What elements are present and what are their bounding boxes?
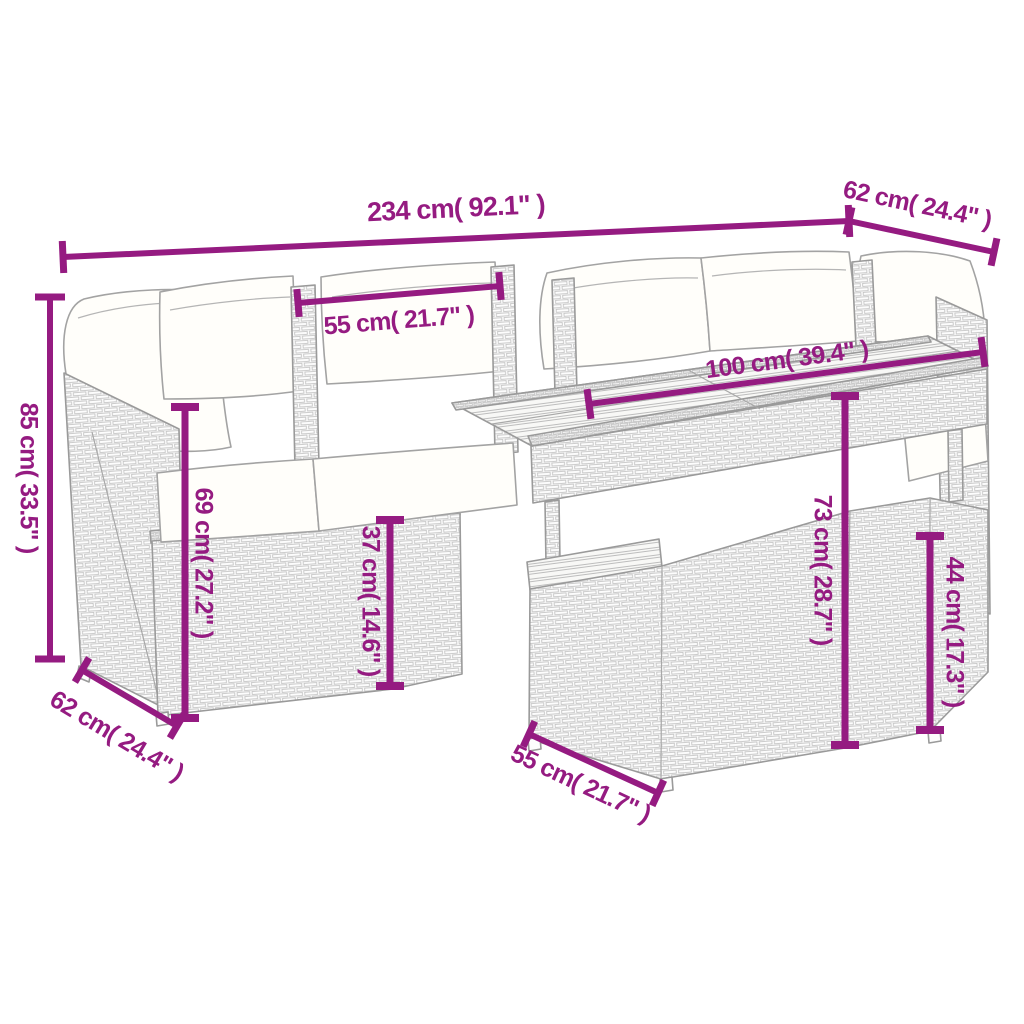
table-leg-right	[948, 429, 963, 502]
back-pillow-2	[160, 276, 299, 399]
table-leg-left	[545, 500, 560, 564]
lower-rattan-body	[529, 498, 988, 779]
seat-cushion-1	[157, 459, 319, 542]
corner-sofa-body	[64, 373, 517, 719]
back-post-1	[291, 285, 319, 469]
furniture-dimension-diagram: 234 cm( 92.1" )62 cm( 24.4" )55 cm( 21.7…	[0, 0, 1024, 1024]
dimension-label-table-height: 73 cm( 28.7" )	[808, 495, 836, 646]
dimension-label-side-seat-height: 44 cm( 17.3" )	[940, 557, 968, 708]
dimension-label-overall-width: 234 cm( 92.1" )	[366, 189, 545, 227]
dimension-label-overall-height: 85 cm( 33.5" )	[14, 403, 42, 554]
seat-cushion-2	[313, 443, 517, 531]
dimension-label-seat-height: 37 cm( 14.6" )	[356, 526, 384, 677]
dimension-label-backrest-height: 69 cm( 27.2" )	[189, 488, 217, 639]
back-post-4	[852, 260, 876, 347]
dimension-overall-height: 85 cm( 33.5" )	[14, 297, 65, 659]
back-pillow-5	[701, 251, 858, 351]
